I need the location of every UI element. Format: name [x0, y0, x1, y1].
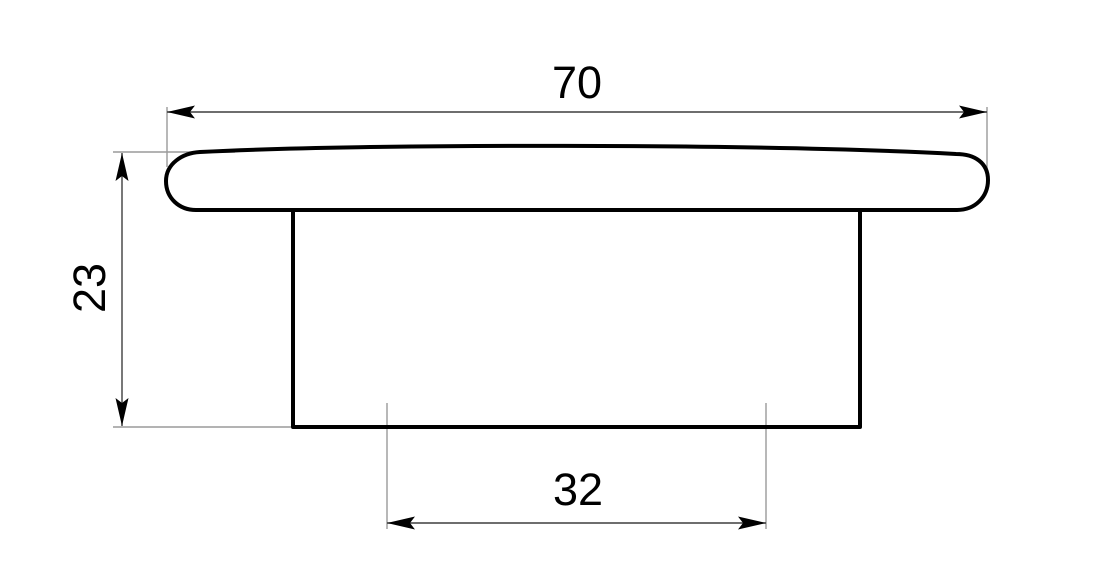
dim-70-label: 70: [552, 57, 602, 108]
dimension-arrowheads: [116, 106, 988, 530]
object-lines: [166, 146, 988, 427]
dimension-labels: 70 23 32: [64, 57, 603, 515]
stem-body-outline: [293, 210, 860, 427]
drawing-canvas: 70 23 32: [0, 0, 1117, 576]
extension-lines: [113, 107, 987, 529]
dimension-lines: [122, 112, 987, 523]
technical-drawing: 70 23 32: [0, 0, 1117, 576]
dim-23-label: 23: [64, 263, 115, 313]
dim-32-label: 32: [553, 464, 603, 515]
cap-profile-outline: [166, 146, 988, 210]
